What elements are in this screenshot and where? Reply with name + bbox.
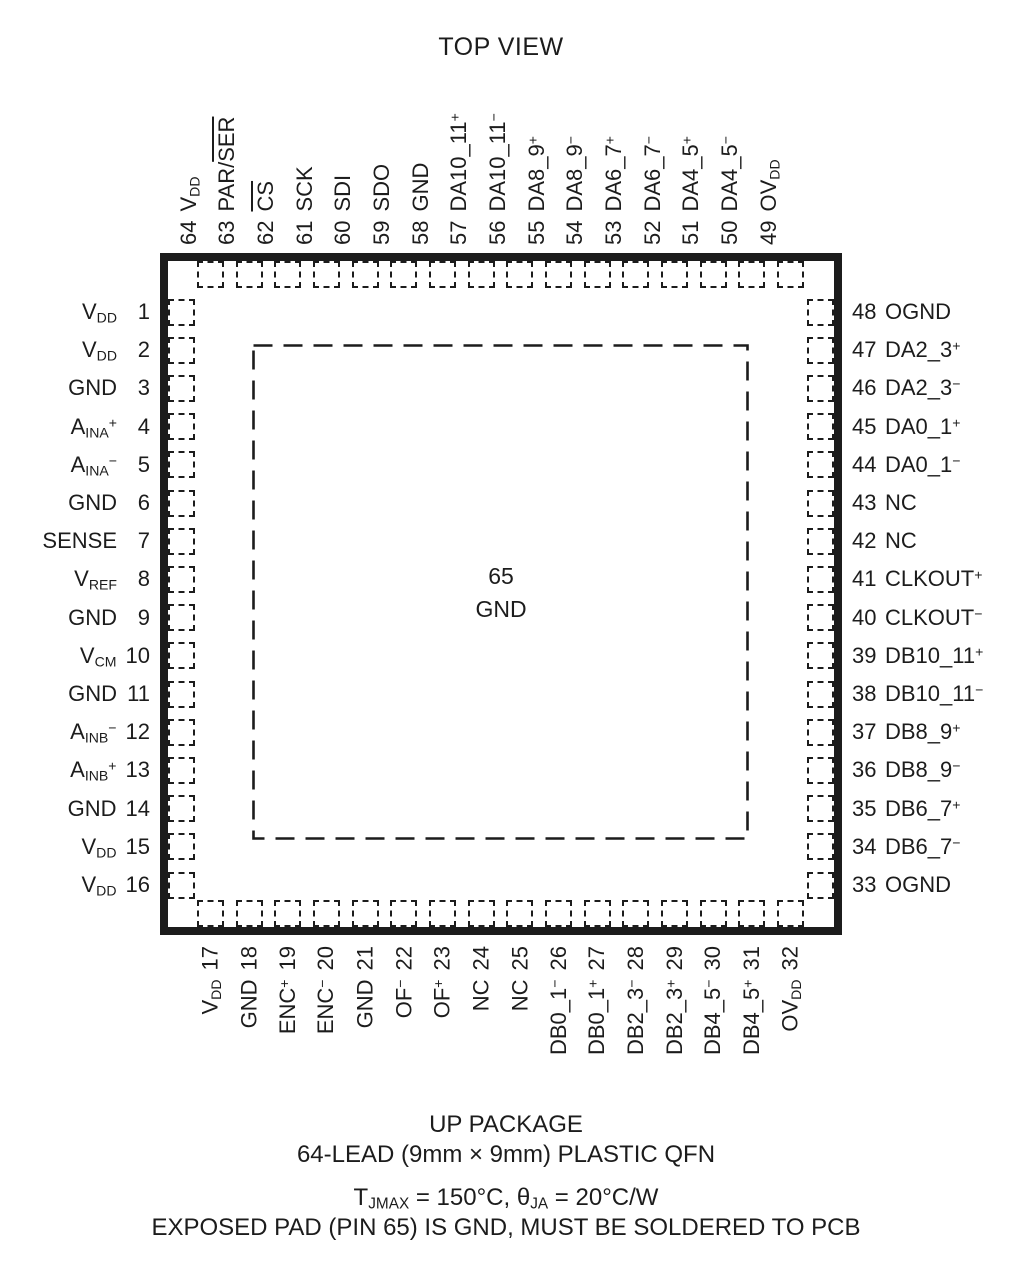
pin-name: OVDD	[778, 979, 803, 1031]
pin-number: 26	[546, 946, 571, 970]
pin-name: ENC+	[275, 979, 300, 1034]
pin-pad	[807, 757, 834, 784]
pin-label: OVDD32	[780, 946, 802, 1032]
pin-number: 63	[214, 221, 239, 245]
thermal-note: TJMAX = 150°C, θJA = 20°C/W	[0, 1183, 1012, 1213]
exposed-pad-number: 65	[160, 560, 842, 593]
pin-pad	[168, 833, 195, 860]
pin-label: 63PAR/SER	[216, 117, 238, 245]
pin-name: ENC−	[314, 979, 339, 1034]
pin-pad	[168, 413, 195, 440]
pin-number: 60	[330, 221, 355, 245]
pin-pad	[506, 261, 533, 288]
pin-name: AINB+	[70, 757, 116, 782]
pin-label: 57DA10_11+	[448, 113, 470, 245]
pin-label: 41CLKOUT+	[852, 565, 982, 593]
pin-number: 58	[408, 221, 433, 245]
exposed-pad-label: 65 GND	[160, 560, 842, 626]
pin-name: GND	[68, 605, 117, 630]
pin-label: 58GND	[410, 163, 432, 245]
pin-pad	[700, 900, 727, 927]
pin-label: 39DB10_11+	[852, 642, 983, 670]
pin-label: NC24	[470, 946, 492, 1011]
pin-pad	[468, 900, 495, 927]
pin-pad	[236, 261, 263, 288]
pin-number: 33	[852, 871, 877, 899]
pin-number: 46	[852, 374, 877, 402]
pin-pad	[168, 872, 195, 899]
pin-number: 44	[852, 451, 877, 479]
pin-pad	[313, 261, 340, 288]
pin-name: DA10_11−	[485, 113, 510, 211]
pin-pad	[545, 261, 572, 288]
pin-number: 55	[524, 221, 549, 245]
pin-number: 19	[275, 946, 300, 970]
pin-label: 43NC	[852, 489, 917, 517]
pin-name: DA8_9−	[562, 136, 587, 212]
pin-name: CLKOUT+	[885, 566, 982, 591]
pin-pad	[168, 642, 195, 669]
pin-pad	[168, 681, 195, 708]
pin-pad	[468, 261, 495, 288]
pin-number: 31	[739, 946, 764, 970]
pin-label: GND9	[68, 604, 150, 632]
pin-name: OGND	[885, 872, 951, 897]
pin-name: VDD	[82, 299, 117, 324]
pin-pad	[807, 719, 834, 746]
pin-pad	[584, 261, 611, 288]
pin-label: AINB+13	[70, 756, 150, 784]
pin-name: DB2_3+	[662, 979, 687, 1055]
pin-label: GND11	[68, 680, 150, 708]
pin-name: DB2_3−	[623, 979, 648, 1055]
pin-number: 10	[126, 642, 150, 670]
pin-name: DB8_9+	[885, 719, 961, 744]
pin-number: 5	[126, 451, 150, 479]
pin-label: DB0_1−26	[548, 946, 570, 1055]
pin-name: DA6_7−	[640, 136, 665, 212]
pin-label: 37DB8_9+	[852, 718, 961, 746]
pin-pad	[807, 604, 834, 631]
pin-name: GND	[68, 681, 117, 706]
pin-name: DA8_9+	[524, 136, 549, 212]
pin-number: 52	[640, 221, 665, 245]
pin-label: VCM10	[80, 642, 150, 670]
pin-pad	[274, 900, 301, 927]
pin-number: 34	[852, 833, 877, 861]
pin-pad	[807, 413, 834, 440]
pin-name: CLKOUT−	[885, 605, 982, 630]
pin-name: GND	[68, 375, 117, 400]
pin-name: DB4_5−	[700, 979, 725, 1055]
pin-number: 8	[126, 565, 150, 593]
pin-number: 56	[485, 221, 510, 245]
pin-name: OGND	[885, 299, 951, 324]
pin-number: 64	[176, 221, 201, 245]
pin-label: 51DA4_5+	[680, 136, 702, 245]
pin-label: ENC+19	[277, 946, 299, 1034]
pin-number: 61	[292, 221, 317, 245]
pin-number: 11	[126, 680, 150, 708]
pin-pad	[352, 900, 379, 927]
pin-label: ENC−20	[316, 946, 338, 1034]
pin-number: 42	[852, 527, 877, 555]
pin-label: 40CLKOUT−	[852, 604, 982, 632]
pin-label: VDD17	[200, 946, 222, 1015]
pin-pad	[236, 900, 263, 927]
pin-pad	[429, 261, 456, 288]
pin-label: 54DA8_9−	[564, 136, 586, 245]
pin-number: 40	[852, 604, 877, 632]
pin-label: 55DA8_9+	[526, 136, 548, 245]
pin-pad	[390, 261, 417, 288]
pin-number: 9	[126, 604, 150, 632]
pin-pad	[168, 566, 195, 593]
pin-number: 47	[852, 336, 877, 364]
pin-name: OF+	[430, 979, 455, 1018]
pin-name: VDD	[82, 337, 117, 362]
pin-number: 18	[236, 946, 261, 970]
pin-number: 20	[314, 946, 339, 970]
pin-number: 2	[126, 336, 150, 364]
pin-label: 44DA0_1−	[852, 451, 961, 479]
pin-label: 64VDD	[178, 176, 200, 245]
pin-label: DB2_3+29	[664, 946, 686, 1055]
pin-label: 50DA4_5−	[719, 136, 741, 245]
pin-number: 12	[126, 718, 150, 746]
pin-name: GND	[68, 490, 117, 515]
pin-number: 53	[601, 221, 626, 245]
pin-name: DB0_1−	[546, 979, 571, 1055]
pin-name: PAR/SER	[214, 117, 239, 212]
pin-pad	[352, 261, 379, 288]
pin-number: 3	[126, 374, 150, 402]
pin-name: DB10_11+	[885, 643, 983, 668]
pin-label: DB2_3−28	[625, 946, 647, 1055]
pin-pad	[807, 833, 834, 860]
pin-name: SCK	[292, 166, 317, 211]
pin-number: 30	[700, 946, 725, 970]
pin-label: DB0_1+27	[586, 946, 608, 1055]
pin-pad	[807, 566, 834, 593]
pin-pad	[807, 642, 834, 669]
pin-number: 59	[369, 221, 394, 245]
pin-name: DB8_9−	[885, 757, 961, 782]
pin-label: 36DB8_9−	[852, 756, 961, 784]
pin-number: 7	[126, 527, 150, 555]
pin-number: 49	[756, 221, 781, 245]
pin-label: GND14	[68, 795, 150, 823]
pin-pad	[807, 872, 834, 899]
pin-label: 52DA6_7−	[642, 136, 664, 245]
pin-name: DA0_1+	[885, 414, 961, 439]
pin-name: SDI	[330, 175, 355, 212]
pin-pad	[777, 261, 804, 288]
pin-pad	[168, 337, 195, 364]
pin-name: DA6_7+	[601, 136, 626, 212]
pin-pad	[584, 900, 611, 927]
pin-name: GND	[352, 979, 377, 1028]
pin-name: AINA−	[71, 452, 117, 477]
pin-name: DB4_5+	[739, 979, 764, 1055]
top-view-title: TOP VIEW	[160, 33, 842, 61]
pin-pad	[429, 900, 456, 927]
pin-pad	[661, 900, 688, 927]
pin-name: AINA+	[71, 414, 117, 439]
pin-name: VDD	[176, 176, 201, 211]
pin-name: NC	[468, 979, 493, 1011]
pin-pad	[168, 719, 195, 746]
pin-number: 15	[126, 833, 150, 861]
pin-name: AINB−	[70, 719, 116, 744]
pin-name: VDD	[81, 834, 116, 859]
pin-pad	[168, 299, 195, 326]
pin-name: DA2_3−	[885, 375, 961, 400]
pin-number: 37	[852, 718, 877, 746]
pin-number: 45	[852, 413, 877, 441]
pin-pad	[661, 261, 688, 288]
pin-name: DA2_3+	[885, 337, 961, 362]
package-description: 64-LEAD (9mm × 9mm) PLASTIC QFN	[0, 1140, 1012, 1170]
pin-label: DB4_5+31	[741, 946, 763, 1055]
pin-label: GND18	[238, 946, 260, 1028]
pin-label: 33OGND	[852, 871, 951, 899]
pin-name: GND	[68, 796, 117, 821]
pin-pad	[313, 900, 340, 927]
pin-pad	[738, 900, 765, 927]
pin-label: VDD1	[82, 298, 150, 326]
pin-number: 50	[717, 221, 742, 245]
exposed-pad-note: EXPOSED PAD (PIN 65) IS GND, MUST BE SOL…	[0, 1213, 1012, 1243]
pin-label: OF+23	[432, 946, 454, 1018]
pin-name: NC	[507, 979, 532, 1011]
pin-name: VCM	[80, 643, 117, 668]
pin-number: 24	[468, 946, 493, 970]
pin-pad	[807, 337, 834, 364]
pin-pad	[168, 451, 195, 478]
pin-name: DA4_5−	[717, 136, 742, 212]
pinout-diagram: TOP VIEW 65 GND UP PACKAGE 64-LEAD (9mm …	[0, 0, 1032, 1275]
pin-pad	[807, 795, 834, 822]
pin-pad	[807, 451, 834, 478]
pin-pad	[807, 681, 834, 708]
pin-number: 25	[507, 946, 532, 970]
package-notes: UP PACKAGE 64-LEAD (9mm × 9mm) PLASTIC Q…	[0, 1110, 1012, 1243]
pin-pad	[168, 528, 195, 555]
pin-label: 34DB6_7−	[852, 833, 961, 861]
pin-number: 41	[852, 565, 877, 593]
pin-name: NC	[885, 490, 917, 515]
pin-pad	[622, 261, 649, 288]
pin-number: 4	[126, 413, 150, 441]
pin-number: 1	[126, 298, 150, 326]
package-name: UP PACKAGE	[0, 1110, 1012, 1140]
pin-label: AINB−12	[70, 718, 150, 746]
pin-label: 60SDI	[332, 175, 354, 245]
pin-pad	[168, 490, 195, 517]
pin-label: 38DB10_11−	[852, 680, 983, 708]
pin-pad	[168, 604, 195, 631]
pin-number: 22	[391, 946, 416, 970]
pin-pad	[390, 900, 417, 927]
pin-name: DB6_7−	[885, 834, 961, 859]
exposed-pad-name: GND	[160, 593, 842, 626]
pin-pad	[807, 375, 834, 402]
pin-number: 23	[430, 946, 455, 970]
pin-label: GND21	[354, 946, 376, 1028]
pin-name: GND	[408, 163, 433, 212]
pin-number: 16	[126, 871, 150, 899]
pin-number: 32	[778, 946, 803, 970]
pin-number: 36	[852, 756, 877, 784]
pin-label: NC25	[509, 946, 531, 1011]
pin-pad	[197, 900, 224, 927]
pin-pad	[274, 261, 301, 288]
pin-name: OF−	[391, 979, 416, 1018]
pin-pad	[807, 490, 834, 517]
pin-name: DA4_5+	[678, 136, 703, 212]
pin-number: 35	[852, 795, 877, 823]
pin-name: OVDD	[756, 159, 781, 211]
pin-label: 42NC	[852, 527, 917, 555]
pin-pad	[197, 261, 224, 288]
pin-label: 53DA6_7+	[603, 136, 625, 245]
pin-label: 35DB6_7+	[852, 795, 961, 823]
pin-pad	[807, 299, 834, 326]
pin-pad	[168, 757, 195, 784]
pin-name: DA10_11+	[446, 113, 471, 211]
pin-number: 43	[852, 489, 877, 517]
pin-number: 51	[678, 221, 703, 245]
pin-label: VDD15	[81, 833, 150, 861]
pin-pad	[168, 375, 195, 402]
pin-number: 38	[852, 680, 877, 708]
pin-pad	[545, 900, 572, 927]
pin-pad	[807, 528, 834, 555]
pin-label: GND6	[68, 489, 150, 517]
pin-number: 6	[126, 489, 150, 517]
pin-label: GND3	[68, 374, 150, 402]
pin-number: 54	[562, 221, 587, 245]
pin-label: AINA+4	[71, 413, 150, 441]
pin-label: AINA−5	[71, 451, 150, 479]
pin-number: 14	[126, 795, 150, 823]
pin-name: SENSE	[42, 528, 117, 553]
pin-pad	[506, 900, 533, 927]
pin-pad	[168, 795, 195, 822]
pin-label: 62CS	[255, 181, 277, 245]
pin-number: 29	[662, 946, 687, 970]
pin-pad	[777, 900, 804, 927]
pin-name: VDD	[81, 872, 116, 897]
pin-label: 49OVDD	[758, 159, 780, 245]
pin-label: 56DA10_11−	[487, 113, 509, 245]
pin-name: CS	[253, 181, 278, 212]
pin-name: VDD	[198, 979, 223, 1014]
pin-label: 46DA2_3−	[852, 374, 961, 402]
pin-label: VREF8	[74, 565, 150, 593]
pin-number: 57	[446, 221, 471, 245]
pin-number: 28	[623, 946, 648, 970]
pin-number: 13	[126, 756, 150, 784]
pin-pad	[622, 900, 649, 927]
pin-name: VREF	[74, 566, 117, 591]
pin-number: 17	[198, 946, 223, 970]
pin-label: 45DA0_1+	[852, 413, 961, 441]
pin-name: DB6_7+	[885, 796, 961, 821]
pin-pad	[738, 261, 765, 288]
pin-label: VDD16	[81, 871, 150, 899]
pin-label: 48OGND	[852, 298, 951, 326]
pin-name: DB0_1+	[584, 979, 609, 1055]
pin-pad	[700, 261, 727, 288]
pin-label: OF−22	[393, 946, 415, 1018]
pin-number: 21	[352, 946, 377, 970]
pin-name: SDO	[369, 164, 394, 212]
pin-label: DB4_5−30	[702, 946, 724, 1055]
pin-number: 39	[852, 642, 877, 670]
pin-label: 47DA2_3+	[852, 336, 961, 364]
pin-name: DA0_1−	[885, 452, 961, 477]
pin-name: GND	[236, 979, 261, 1028]
pin-number: 27	[584, 946, 609, 970]
pin-name: NC	[885, 528, 917, 553]
pin-number: 48	[852, 298, 877, 326]
pin-label: 59SDO	[371, 164, 393, 245]
pin-label: VDD2	[82, 336, 150, 364]
pin-name: DB10_11−	[885, 681, 983, 706]
pin-label: SENSE7	[42, 527, 150, 555]
pin-number: 62	[253, 221, 278, 245]
pin-label: 61SCK	[294, 166, 316, 245]
